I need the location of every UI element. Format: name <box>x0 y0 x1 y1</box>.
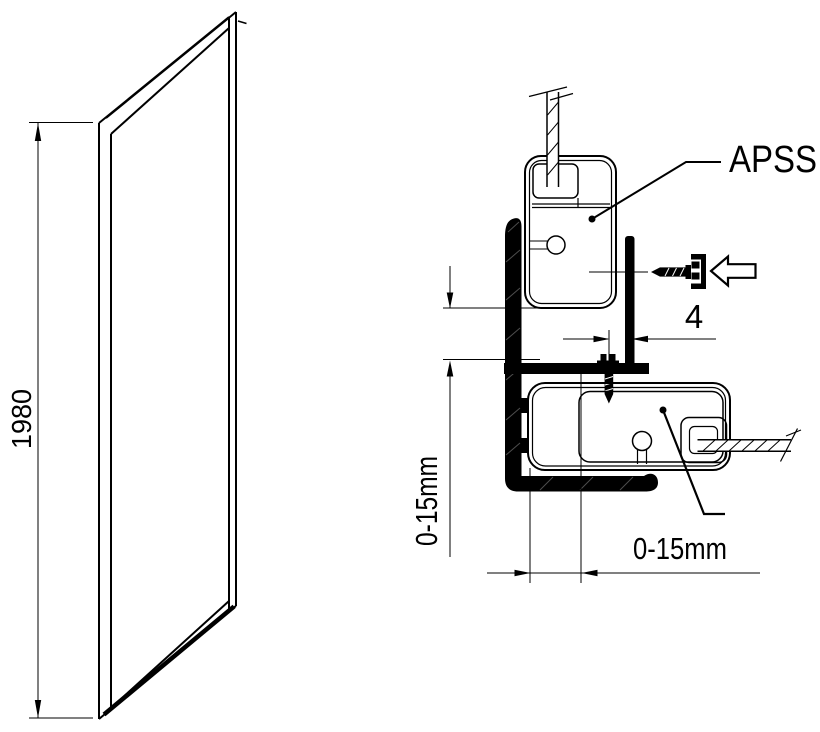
fixing-screw-horizontal <box>651 265 691 279</box>
arrow-down-icon <box>35 700 41 718</box>
installation-diagram: 1980 <box>0 0 820 732</box>
bottom-rail-thick-edge <box>104 607 234 715</box>
fixing-bar-vertical <box>625 236 635 368</box>
extension-lines <box>530 368 581 583</box>
glass-panel-perspective <box>99 12 247 719</box>
height-label: 1980 <box>6 389 37 449</box>
arrow-up-icon <box>35 123 41 141</box>
clamp-plate-bottom <box>597 354 619 368</box>
arrow-up-icon <box>447 361 454 377</box>
horizontal-adjustment-dimension: 0-15mm <box>487 531 760 576</box>
fixing-bar-horizontal <box>504 363 649 374</box>
profile-leader <box>660 407 726 515</box>
gap-label: 4 <box>685 298 703 335</box>
apss-leader: APSS <box>589 139 818 223</box>
clamp-plate-side <box>691 254 706 289</box>
glass-edge-top <box>529 87 573 187</box>
corner-tick <box>238 21 247 24</box>
diagram-page: 1980 <box>0 0 820 732</box>
insert-arrow-icon <box>711 257 756 286</box>
fixing-screw-vertical <box>605 374 614 404</box>
profile-label: APSS <box>729 139 817 181</box>
height-dimension: 1980 <box>6 123 93 719</box>
apss-profile-top-section <box>525 156 616 308</box>
apss-profile-bottom-section <box>528 383 730 470</box>
profile-bore-hole <box>547 236 565 254</box>
arrow-left-icon <box>582 570 598 577</box>
arrow-right-icon <box>515 570 531 577</box>
vertical-adjustment-label: 0-15mm <box>409 456 444 546</box>
glass-edge-bottom <box>698 429 802 462</box>
horizontal-adjustment-label: 0-15mm <box>633 531 727 566</box>
profile-bore-hole <box>633 432 652 451</box>
arrow-down-icon <box>447 293 454 309</box>
arrow-right-icon <box>594 336 610 343</box>
